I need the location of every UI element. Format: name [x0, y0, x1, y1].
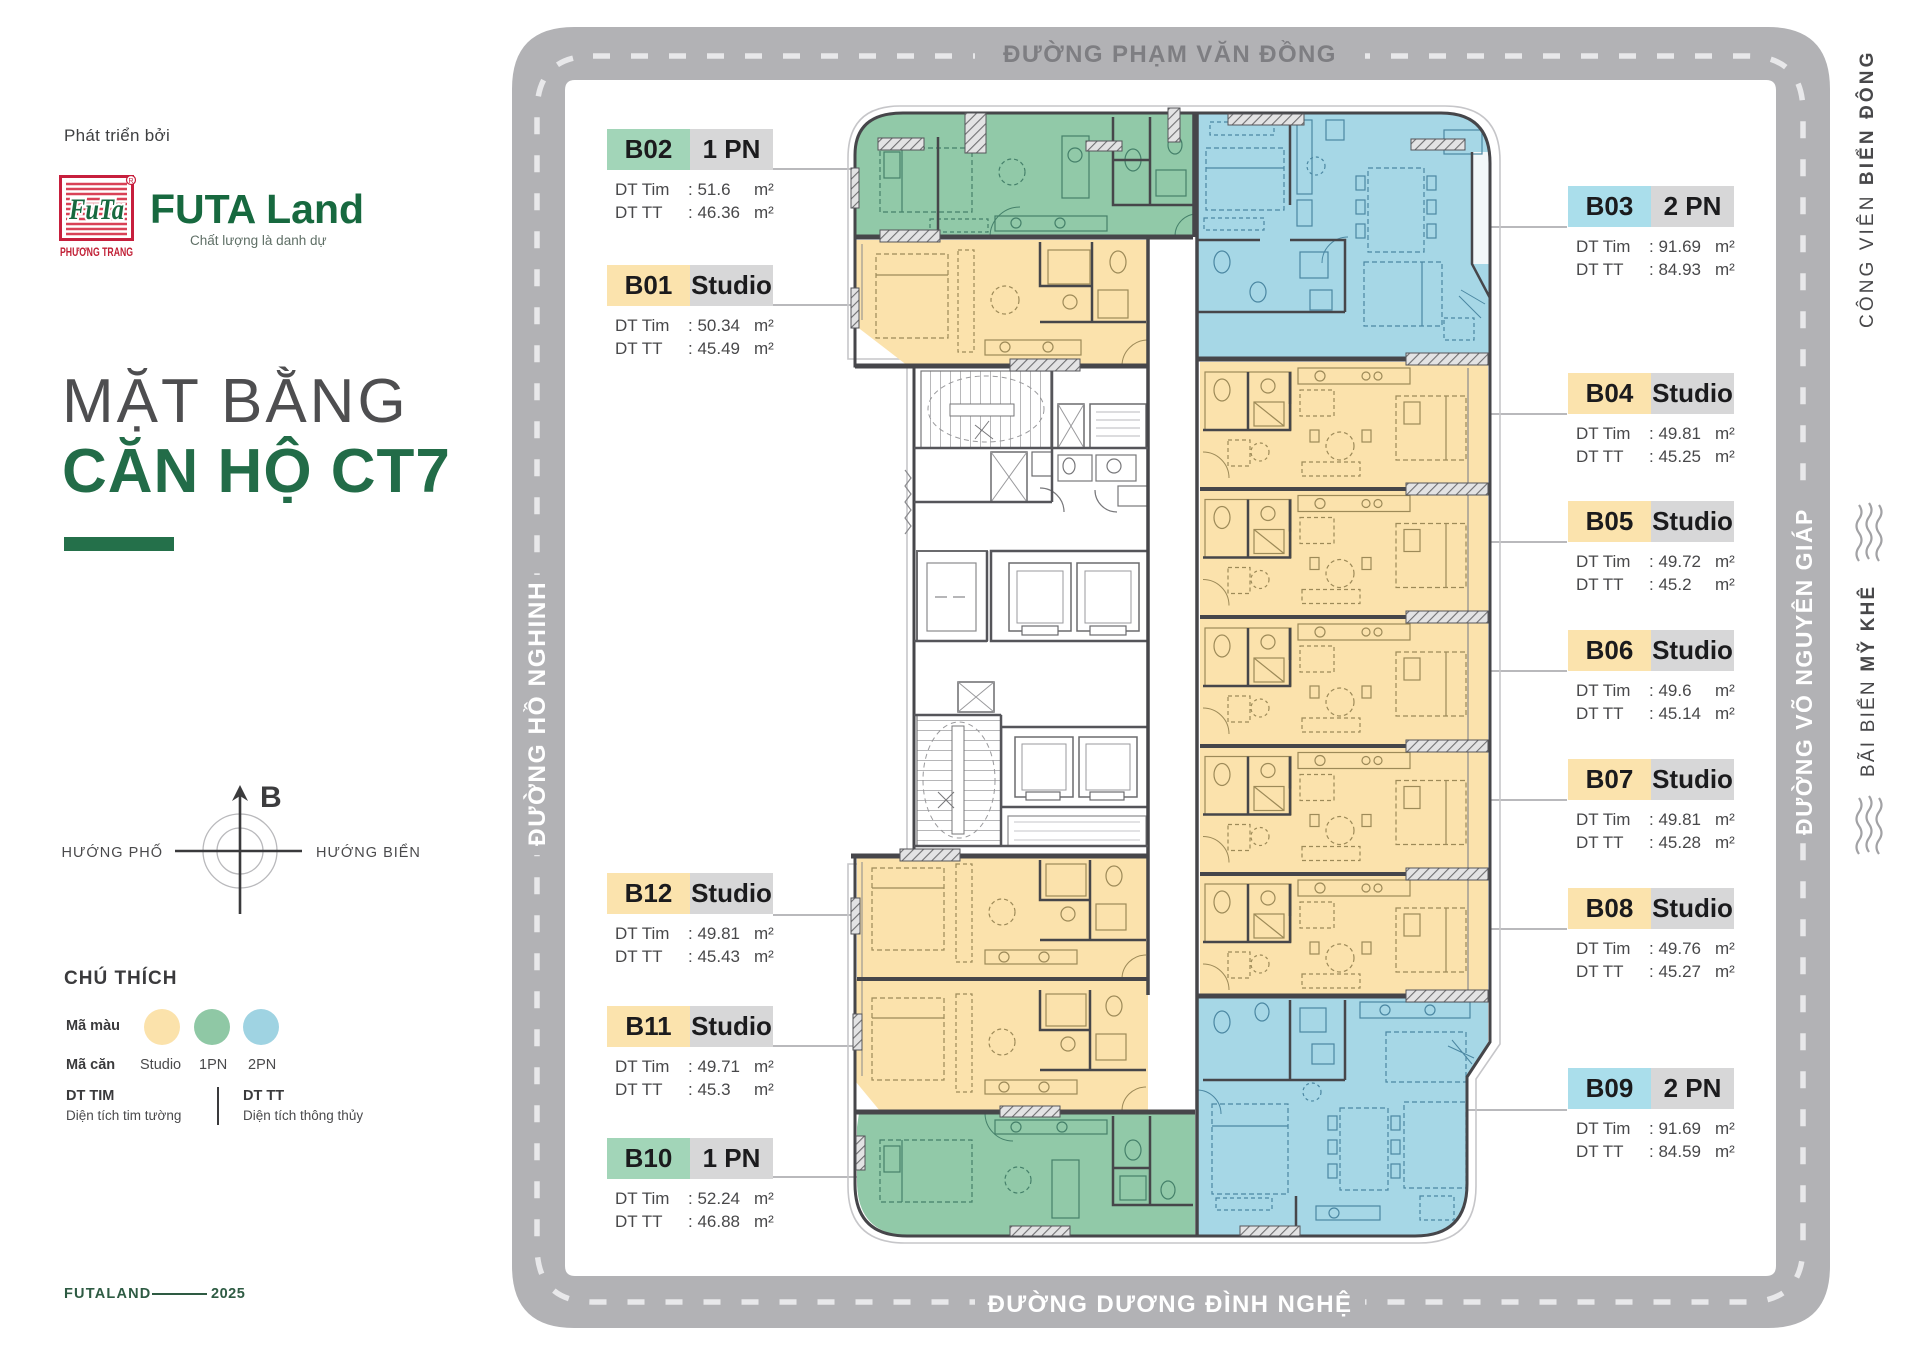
- svg-text:HƯỚNG BIỂN: HƯỚNG BIỂN: [316, 843, 420, 861]
- svg-text:ĐƯỜNG DƯƠNG ĐÌNH NGHỆ: ĐƯỜNG DƯƠNG ĐÌNH NGHỆ: [988, 1290, 1353, 1318]
- svg-text:ĐƯỜNG PHẠM VĂN ĐỒNG: ĐƯỜNG PHẠM VĂN ĐỒNG: [1003, 40, 1337, 68]
- svg-text:PHƯƠNG TRANG: PHƯƠNG TRANG: [60, 247, 133, 259]
- svg-text:ĐƯỜNG VÕ NGUYÊN GIÁP: ĐƯỜNG VÕ NGUYÊN GIÁP: [1790, 508, 1817, 835]
- svg-text:BÃI BIỂN MỸ KHÊ: BÃI BIỂN MỸ KHÊ: [1857, 585, 1879, 777]
- svg-text:R: R: [128, 178, 133, 185]
- svg-text:B: B: [260, 781, 282, 814]
- svg-text:FuTa: FuTa: [68, 193, 124, 226]
- svg-text:CÔNG VIÊN BIỂN ĐÔNG: CÔNG VIÊN BIỂN ĐÔNG: [1856, 50, 1878, 328]
- svg-text:HƯỚNG PHỐ: HƯỚNG PHỐ: [62, 843, 164, 861]
- svg-text:ĐƯỜNG HỒ NGHINH: ĐƯỜNG HỒ NGHINH: [523, 581, 551, 846]
